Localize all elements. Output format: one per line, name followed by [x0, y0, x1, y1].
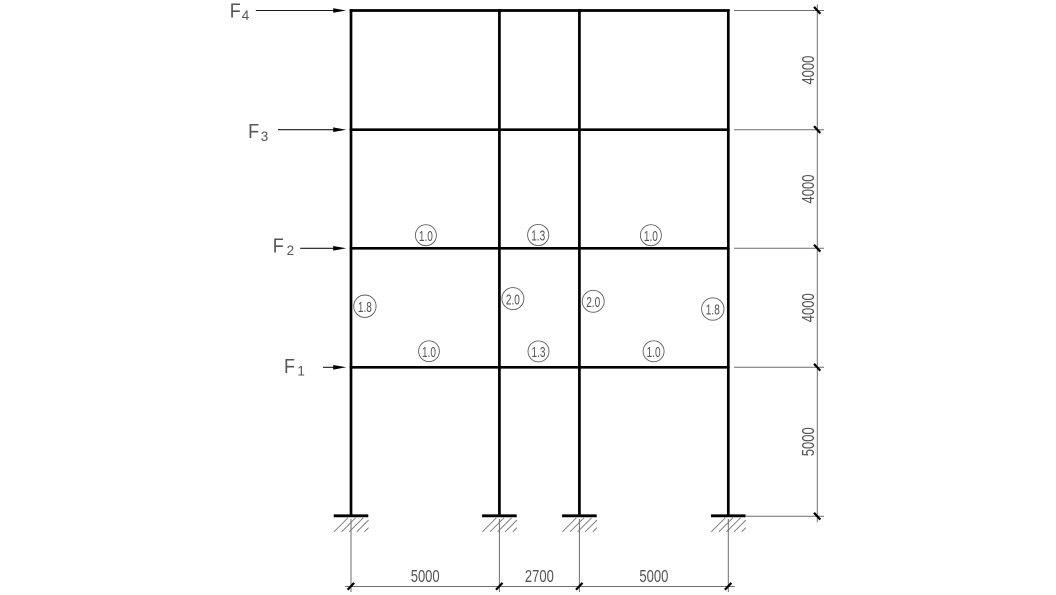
svg-text:1.0: 1.0	[644, 228, 658, 245]
svg-text:1.0: 1.0	[419, 228, 433, 245]
svg-text:F: F	[230, 0, 241, 22]
svg-text:F: F	[284, 355, 295, 378]
svg-text:1.8: 1.8	[358, 299, 372, 316]
svg-text:1: 1	[297, 362, 305, 378]
svg-text:4: 4	[242, 7, 250, 23]
svg-text:1.3: 1.3	[531, 228, 545, 245]
svg-text:5000: 5000	[798, 427, 818, 456]
svg-text:F: F	[248, 120, 259, 143]
svg-text:3: 3	[261, 128, 269, 144]
svg-text:1.8: 1.8	[706, 302, 720, 319]
svg-text:4000: 4000	[798, 293, 818, 322]
svg-text:F: F	[273, 234, 284, 257]
svg-text:1.0: 1.0	[647, 344, 661, 361]
svg-text:4000: 4000	[798, 175, 818, 204]
svg-text:5000: 5000	[411, 566, 440, 586]
svg-text:1.3: 1.3	[532, 344, 546, 361]
svg-text:2.0: 2.0	[586, 294, 600, 311]
svg-text:5000: 5000	[639, 566, 668, 586]
svg-text:1.0: 1.0	[422, 344, 436, 361]
svg-text:2: 2	[287, 242, 295, 258]
svg-text:2.0: 2.0	[506, 291, 520, 308]
svg-text:4000: 4000	[798, 56, 818, 85]
svg-text:2700: 2700	[525, 566, 554, 586]
